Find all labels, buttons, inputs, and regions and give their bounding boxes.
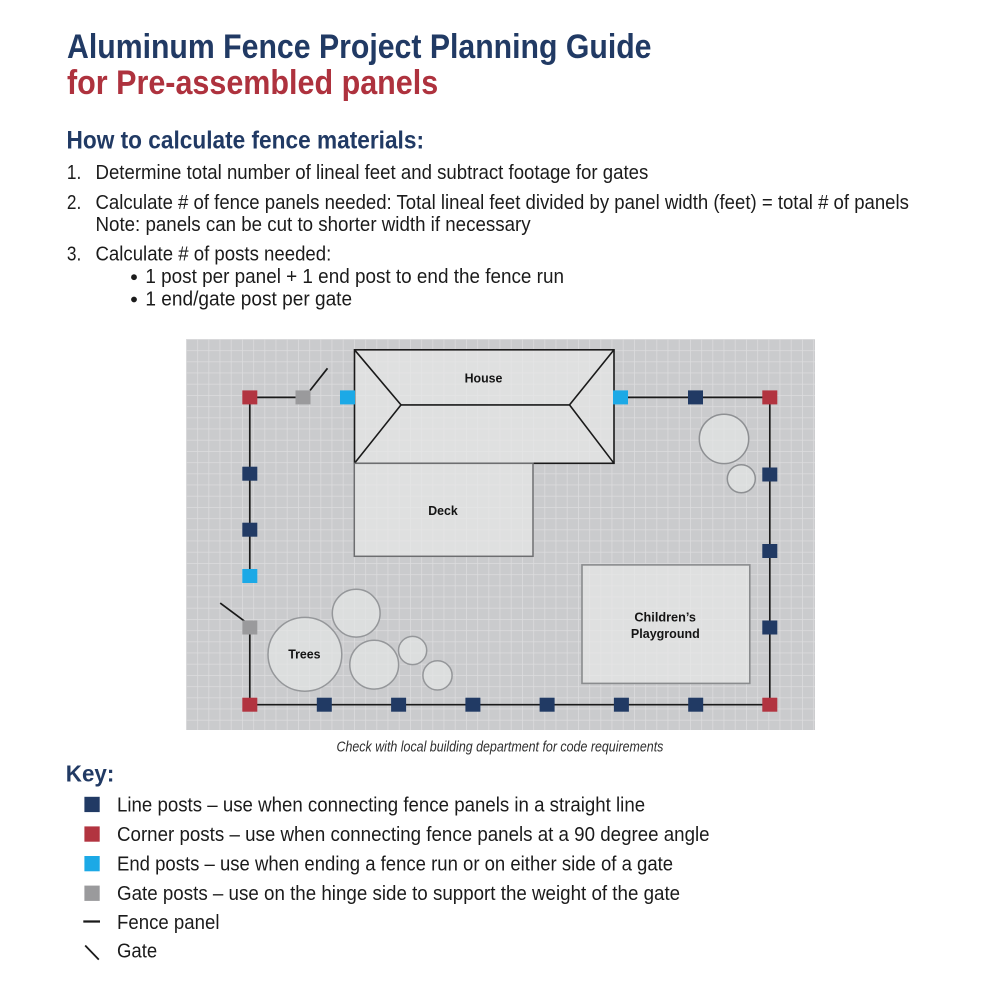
svg-text:Aluminum Fence Project Plannin: Aluminum Fence Project Planning Guide (67, 28, 652, 66)
svg-text:Playground: Playground (631, 626, 700, 641)
svg-text:Deck: Deck (428, 503, 458, 518)
svg-text:Children’s: Children’s (634, 610, 696, 625)
svg-text:Calculate # of fence panels ne: Calculate # of fence panels needed: Tota… (96, 192, 909, 214)
svg-text:Check with local building depa: Check with local building department for… (337, 740, 664, 756)
svg-text:1 post per panel + 1 end post: 1 post per panel + 1 end post to end the… (145, 266, 564, 288)
svg-text:3.: 3. (67, 243, 81, 265)
svg-text:Corner posts – use when connec: Corner posts – use when connecting fence… (117, 824, 710, 846)
svg-text:1 end/gate post per gate: 1 end/gate post per gate (145, 289, 352, 311)
svg-text:Calculate # of posts needed:: Calculate # of posts needed: (96, 243, 332, 265)
svg-text:How to calculate fence materia: How to calculate fence materials: (67, 127, 425, 155)
svg-text:House: House (465, 370, 503, 385)
svg-text:Trees: Trees (288, 647, 320, 662)
svg-text:Gate: Gate (117, 941, 157, 963)
svg-text:Line posts – use when connecti: Line posts – use when connecting fence p… (117, 794, 645, 816)
svg-text:Determine total number of line: Determine total number of lineal feet an… (96, 162, 649, 184)
svg-text:End posts – use when ending a: End posts – use when ending a fence run … (117, 854, 673, 876)
svg-text:Note: panels can be cut to sho: Note: panels can be cut to shorter width… (96, 214, 531, 236)
svg-text:Fence panel: Fence panel (117, 912, 220, 934)
svg-text:for Pre-assembled panels: for Pre-assembled panels (67, 64, 438, 102)
svg-text:Key:: Key: (66, 761, 115, 787)
svg-text:2.: 2. (67, 192, 81, 214)
svg-text:1.: 1. (67, 162, 81, 184)
svg-text:Gate posts – use on the hinge: Gate posts – use on the hinge side to su… (117, 883, 680, 905)
